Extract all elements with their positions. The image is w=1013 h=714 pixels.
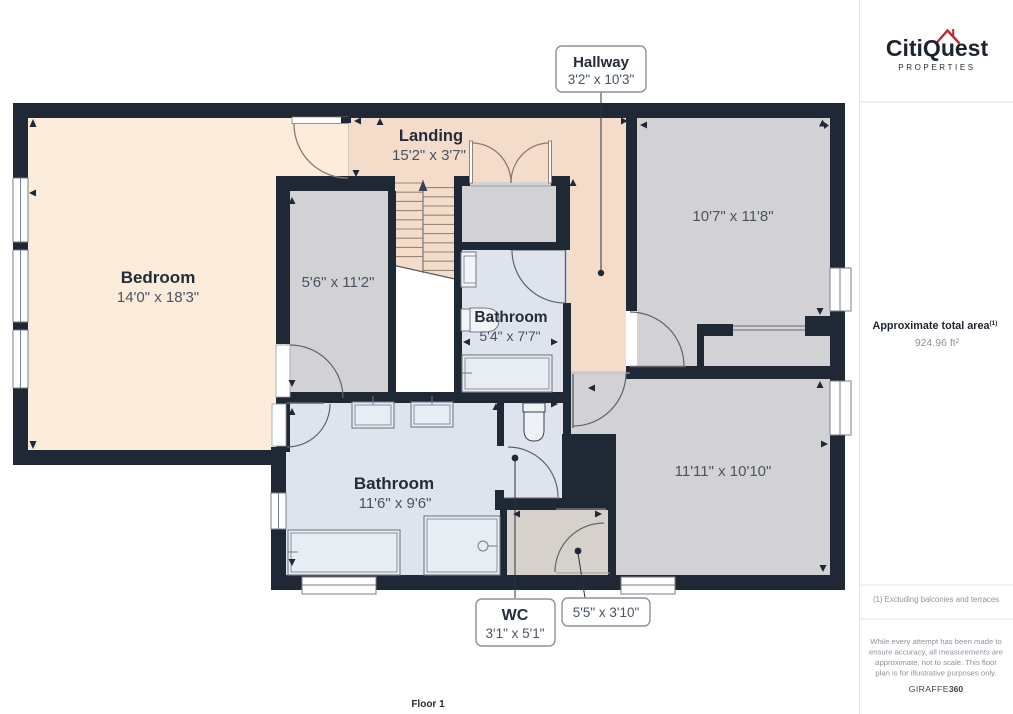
svg-text:5'4" x 7'7": 5'4" x 7'7": [479, 328, 540, 344]
svg-text:Hallway: Hallway: [573, 54, 630, 71]
svg-text:11'6" x 9'6": 11'6" x 9'6": [359, 495, 432, 512]
svg-text:GIRAFFE360: GIRAFFE360: [909, 684, 964, 694]
svg-text:While every attempt has been m: While every attempt has been made to: [870, 637, 1002, 646]
svg-text:Landing: Landing: [399, 127, 463, 145]
svg-text:10'7" x 11'8": 10'7" x 11'8": [692, 208, 773, 225]
svg-text:3'2" x 10'3": 3'2" x 10'3": [568, 72, 635, 87]
svg-text:plan is for illustrative purpo: plan is for illustrative purposes only.: [875, 669, 996, 678]
svg-text:924.96 ft²: 924.96 ft²: [915, 337, 960, 349]
svg-text:11'11" x 10'10": 11'11" x 10'10": [675, 463, 772, 480]
svg-text:3'1" x 5'1": 3'1" x 5'1": [485, 626, 544, 641]
svg-text:ensure accuracy, all measureme: ensure accuracy, all measurements are: [869, 648, 1003, 657]
svg-text:14'0" x 18'3": 14'0" x 18'3": [117, 289, 199, 306]
svg-text:Floor 1: Floor 1: [411, 699, 445, 710]
svg-text:CitiQuest: CitiQuest: [886, 35, 989, 61]
svg-text:5'6" x 11'2": 5'6" x 11'2": [302, 274, 375, 291]
svg-text:Approximate total area(1): Approximate total area(1): [873, 320, 998, 332]
svg-text:5'5" x 3'10": 5'5" x 3'10": [573, 605, 640, 620]
svg-text:(1) Excluding balconies and te: (1) Excluding balconies and terraces: [873, 595, 999, 604]
svg-text:Bathroom: Bathroom: [354, 474, 434, 493]
svg-text:Bedroom: Bedroom: [121, 268, 196, 287]
svg-text:approximate, not to scale. Thi: approximate, not to scale. This floor: [875, 658, 997, 667]
svg-text:15'2" x 3'7": 15'2" x 3'7": [392, 147, 466, 164]
svg-text:Bathroom: Bathroom: [474, 309, 547, 326]
svg-text:PROPERTIES: PROPERTIES: [898, 63, 975, 72]
svg-text:WC: WC: [502, 607, 529, 624]
